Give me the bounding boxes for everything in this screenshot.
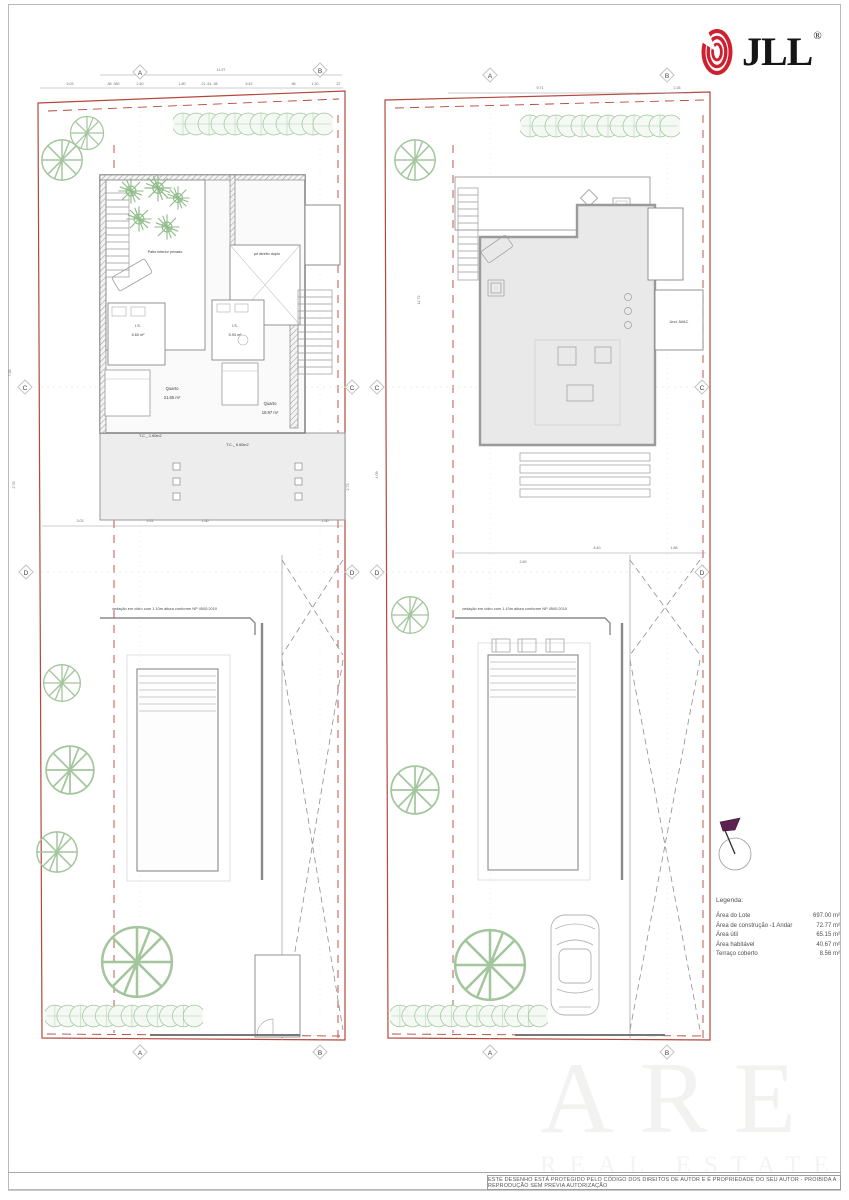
left-floor-plan: 11.97 3.03 .38 .380 2.40 1.80 .21 .61 .3… [5,55,370,1085]
svg-text:7.38: 7.38 [8,370,12,377]
tree-icon [395,140,435,180]
glass-fence [455,618,610,635]
room-area-quarto1: 21.65 m² [164,395,181,400]
svg-text:D: D [700,570,705,577]
svg-text:1.50: 1.50 [322,519,329,523]
svg-text:C: C [350,385,355,392]
svg-text:.98: .98 [291,82,296,86]
fence-note: vedação em vidro com 1.10m altura confor… [462,606,568,611]
svg-text:1.88: 1.88 [671,546,678,550]
legend-item: Área de construção -1 Andar72.77 m² [716,922,840,932]
svg-text:2.69: 2.69 [520,560,527,564]
jll-logo-text: JLL [742,32,812,72]
svg-text:.21 .61 .38: .21 .61 .38 [201,82,218,86]
legend-item: Terraço coberto8.56 m² [716,950,840,960]
svg-text:2.40: 2.40 [137,82,144,86]
plant-icon [145,175,172,202]
svg-text:1.80: 1.80 [179,82,186,86]
avac-room: Und. AVAC [655,290,703,350]
tree-icon [391,766,439,814]
room-area-is1: 6.60 m² [132,333,146,337]
glass-fence [100,618,255,635]
plant-icon [154,214,179,239]
bathroom-1: I.S. 6.60 m² [108,303,165,365]
svg-text:A: A [138,1050,143,1057]
legend-item: Área do Lote697.00 m² [716,912,840,922]
pool-loungers [492,639,564,652]
svg-text:9.71: 9.71 [537,86,544,90]
title-block-line [8,1172,841,1173]
hedge-icon [44,1005,205,1027]
registered-mark: ® [813,30,821,42]
terrace-steps [520,453,650,497]
tree-icon [392,597,429,634]
pool [137,669,218,871]
svg-text:2.26: 2.26 [674,86,681,90]
plant-icon [126,206,151,231]
room-area-quarto2: 18.97 m² [262,410,279,415]
room-label-patio: Patio interior privado [148,250,183,254]
svg-text:C: C [23,385,28,392]
svg-text:B: B [318,68,322,75]
svg-text:A: A [488,73,493,80]
svg-text:11.97: 11.97 [217,68,226,72]
room-label-avac: Und. AVAC [670,320,689,324]
svg-text:3.03: 3.03 [67,82,74,86]
tree-icon [102,927,172,997]
legend-item: Área habitável40.67 m² [716,941,840,951]
svg-text:2.73: 2.73 [346,484,350,491]
svg-text:12.72: 12.72 [417,296,421,305]
bathroom-2: I.S. 5.93 m² [212,300,264,360]
svg-text:B: B [665,1050,669,1057]
room-area-is2: 5.93 m² [229,333,243,337]
svg-text:A: A [138,70,143,77]
legend-item: Área útil65.15 m² [716,931,840,941]
legend-rows: Área do Lote697.00 m² Área de construção… [716,912,840,960]
stairs [458,188,478,280]
title-block-line [8,1190,841,1191]
svg-text:1.50: 1.50 [202,519,209,523]
room-label-tc2: T.C._ 6.60m2 [226,443,249,447]
tree-icon [46,746,94,794]
tree-icon [37,832,77,872]
svg-text:.37: .37 [336,82,341,86]
tree-icon [44,665,81,702]
driveway [630,555,700,1040]
jll-logo: JLL ® [700,24,840,80]
drawing-sheet: ARE REAL ESTATE [0,0,849,1200]
hedge-icon [519,115,682,137]
svg-text:5.31: 5.31 [147,519,154,523]
room-label-is2: I.S. [232,324,238,328]
svg-text:B: B [318,1050,322,1057]
legend: Legenda: Área do Lote697.00 m² Área de c… [712,816,840,960]
room-label-double-height: pé direito duplo [254,252,280,256]
room-label-is1: I.S. [135,324,141,328]
svg-text:B: B [665,73,669,80]
dimensions-top: 11.97 3.03 .38 .380 2.40 1.80 .21 .61 .3… [40,68,343,88]
building: Patio interior privado pé direito duplo … [100,175,345,521]
hedge-icon [172,113,335,135]
svg-text:D: D [375,570,380,577]
svg-text:4.09: 4.09 [375,472,379,479]
svg-text:5.42: 5.42 [246,82,253,86]
svg-text:A: A [488,1050,493,1057]
fence-note: vedação em vidro com 1.10m altura confor… [112,606,218,611]
hedge-icon [389,1005,550,1027]
svg-text:3.03: 3.03 [77,519,84,523]
car-icon [551,915,599,1015]
right-floor-plan: 9.71 2.26 12.72 4.09 [362,55,720,1085]
tree-icon [455,930,525,1000]
svg-text:C: C [700,385,705,392]
legend-title: Legenda: [716,897,840,904]
room-label-tc1: T.C._ 1.60m2 [139,434,162,438]
svg-text:D: D [350,570,355,577]
plant-icon [166,186,189,209]
room-label-quarto1: Quarto [166,386,179,391]
svg-text:8.40: 8.40 [594,546,601,550]
room-label-quarto2: Quarto [264,401,277,406]
roof-terrace [480,205,655,445]
svg-text:2.78: 2.78 [12,482,16,489]
svg-text:.38 .380: .38 .380 [107,82,120,86]
building: Und. AVAC [455,177,703,497]
copyright-notice: ESTE DESENHO ESTÁ PROTEGIDO PELO CÓDIGO … [487,1175,841,1190]
bottom-room [255,955,300,1037]
svg-text:D: D [24,570,29,577]
tree-icon [42,140,82,180]
pool [488,655,578,870]
north-arrow-icon [712,816,772,878]
dimensions-mid: 2.69 8.40 1.88 [455,546,706,564]
svg-text:C: C [375,385,380,392]
svg-text:1.30: 1.30 [312,82,319,86]
dimensions-top: 9.71 2.26 [448,86,693,93]
